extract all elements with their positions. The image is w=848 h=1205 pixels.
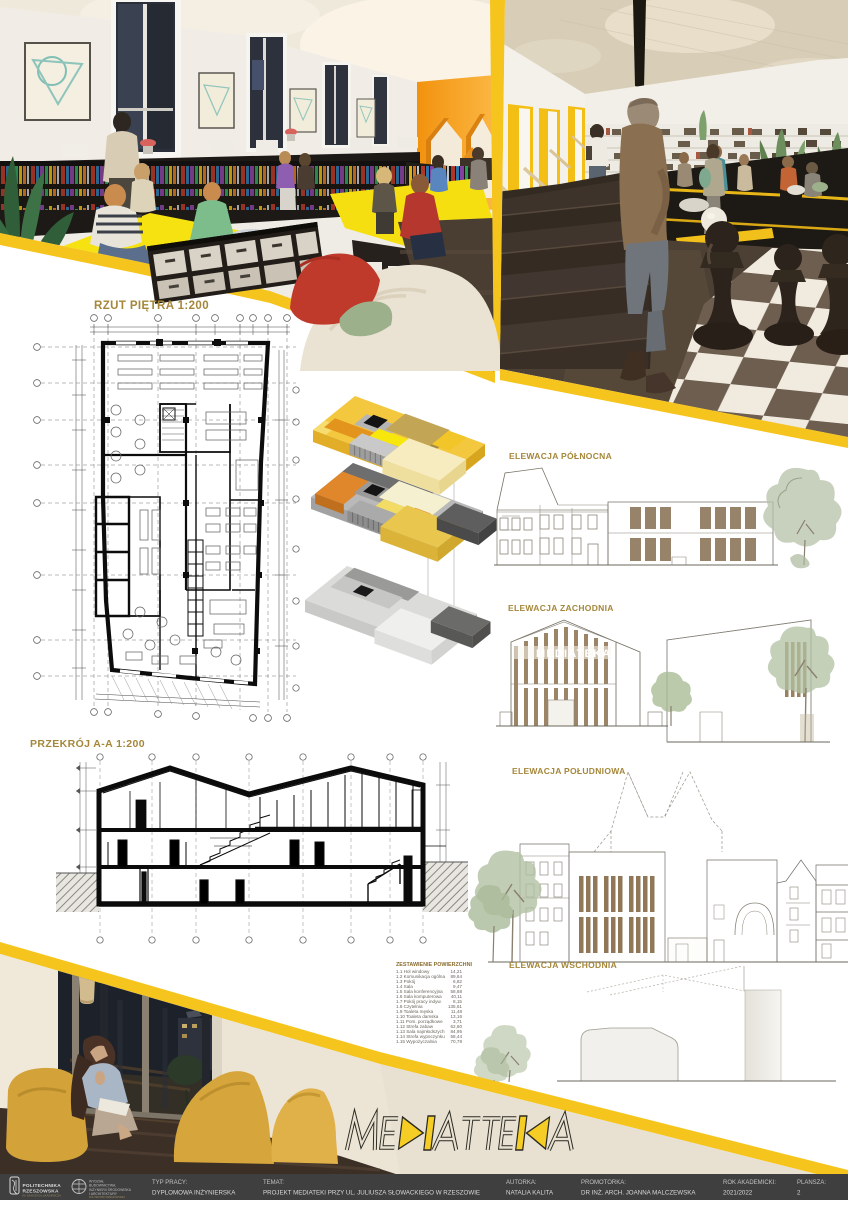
- svg-text:AUTORKA:: AUTORKA:: [506, 1180, 537, 1186]
- svg-text:ZESTAWIENIE POWIERZCHNI: ZESTAWIENIE POWIERZCHNI: [396, 962, 472, 968]
- svg-text:2: 2: [797, 1190, 801, 1197]
- svg-text:TYP PRACY:: TYP PRACY:: [152, 1180, 188, 1186]
- svg-text:1.15 Wypożyczalnia: 1.15 Wypożyczalnia: [396, 1039, 437, 1044]
- svg-text:IM. IGNACEGO ŁUKASIEWICZA: IM. IGNACEGO ŁUKASIEWICZA: [23, 1194, 62, 1198]
- svg-text:DR INŻ. ARCH. JOANNA MALCZEWSK: DR INŻ. ARCH. JOANNA MALCZEWSKA: [581, 1190, 696, 1197]
- svg-text:PRZEKRÓJ A-A 1:200: PRZEKRÓJ A-A 1:200: [30, 737, 145, 750]
- svg-text:ELEWACJA PÓŁNOCNA: ELEWACJA PÓŁNOCNA: [509, 450, 612, 461]
- svg-text:TEMAT:: TEMAT:: [263, 1180, 284, 1186]
- svg-text:2021/2022: 2021/2022: [723, 1190, 753, 1197]
- svg-text:NATALIA KALITA: NATALIA KALITA: [506, 1190, 554, 1197]
- svg-text:ELEWACJA ZACHODNIA: ELEWACJA ZACHODNIA: [508, 603, 614, 613]
- svg-text:70,78: 70,78: [451, 1039, 463, 1044]
- svg-text:RZUT PIĘTRA 1:200: RZUT PIĘTRA 1:200: [94, 300, 209, 312]
- svg-text:ELEWACJA WSCHODNIA: ELEWACJA WSCHODNIA: [509, 960, 617, 970]
- svg-text:PROJEKT MEDIATEKI PRZY UL. JUL: PROJEKT MEDIATEKI PRZY UL. JULIUSZA SŁOW…: [263, 1190, 480, 1197]
- svg-text:POLITECHNIKI RZESZOWSKIEJ: POLITECHNIKI RZESZOWSKIEJ: [89, 1196, 126, 1199]
- svg-text:PROMOTORKA:: PROMOTORKA:: [581, 1180, 626, 1186]
- svg-text:ELEWACJA POŁUDNIOWA: ELEWACJA POŁUDNIOWA: [512, 766, 626, 776]
- svg-text:ROK AKADEMICKI:: ROK AKADEMICKI:: [723, 1180, 776, 1186]
- svg-text:DYPLOMOWA INŻYNIERSKA: DYPLOMOWA INŻYNIERSKA: [152, 1190, 236, 1197]
- svg-text:POLITECHNIKA: POLITECHNIKA: [23, 1183, 62, 1189]
- svg-text:PLANSZA:: PLANSZA:: [797, 1180, 826, 1186]
- svg-text:MEDIATEKA: MEDIATEKA: [536, 648, 611, 660]
